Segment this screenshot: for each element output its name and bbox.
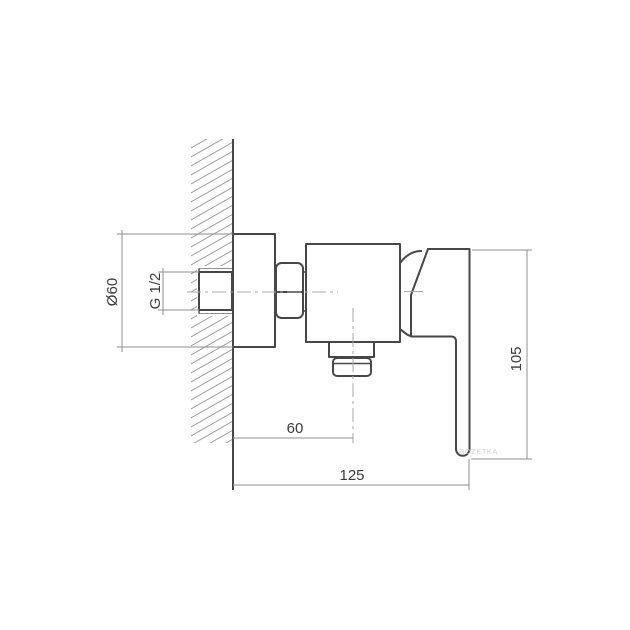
cartridge-bottom-arc [400,329,411,336]
hatch-line [191,142,233,166]
hatch-line [191,448,233,472]
hatch-line [191,322,233,346]
hatch-line [191,340,233,364]
hatch-line [191,151,233,175]
dim-label-outlet-offset: 60 [287,420,304,437]
dim-label-thread-size: G 1/2 [147,273,164,310]
hatch-line [191,241,233,265]
hatch-line [191,367,233,391]
hatch-line [191,178,233,202]
cartridge-top-arc [400,251,422,263]
hatch-line [191,331,233,355]
hatch-line [191,124,233,148]
hatch-line [191,133,233,157]
hatch-line [191,223,233,247]
hatch-line [191,412,233,436]
hatch-line [191,430,233,454]
hatch-line [191,313,233,337]
hatch-line [191,169,233,193]
watermark-text: ROZETKA [459,447,498,456]
hatch-line [191,187,233,211]
supply-pipe [197,266,233,316]
technical-drawing-canvas: Ø60 G 1/2 60 125 105 ROZETKA [0,0,630,630]
dim-label-flange-diameter: Ø60 [104,278,121,306]
hatch-line [191,205,233,229]
escutcheon-flange [233,234,275,347]
outlet-step [329,342,374,357]
dim-overall-height: 105 [471,250,532,459]
outlet-thread [333,358,371,376]
hatch-line [191,376,233,400]
hatch-line [191,439,233,463]
hatch-line [191,421,233,445]
outlet-spout [329,342,374,376]
dim-label-overall-height: 105 [508,346,525,371]
hatch-line [191,403,233,427]
hatch-line [191,232,233,256]
dim-label-overall-depth: 125 [339,467,364,484]
dim-outlet-offset: 60 [233,420,353,438]
union-nut [276,263,308,318]
hatch-line [191,160,233,184]
shower-mixer-dimension-drawing: Ø60 G 1/2 60 125 105 ROZETKA [0,0,630,630]
hatch-line [191,196,233,220]
hatch-line [191,349,233,373]
hatch-line [191,394,233,418]
union-nut-body [276,263,303,318]
handle-lever [411,249,470,456]
hatch-line [191,358,233,382]
supply-pipe-body [199,272,232,310]
dim-overall-depth: 125 [233,459,469,490]
hatch-line [191,385,233,409]
